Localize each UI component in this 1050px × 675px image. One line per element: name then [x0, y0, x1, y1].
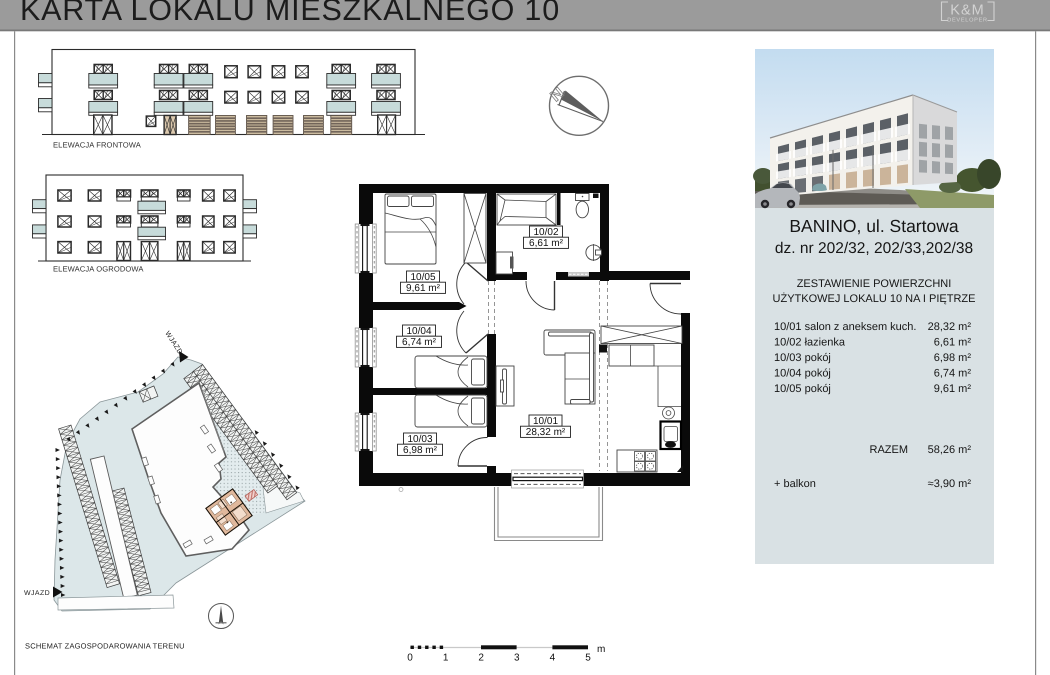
- svg-text:SCHEMAT ZAGOSPODAROWANIA TEREN: SCHEMAT ZAGOSPODAROWANIA TERENU: [25, 642, 185, 651]
- svg-text:4: 4: [550, 653, 556, 664]
- svg-text:≈3,90 m²: ≈3,90 m²: [928, 478, 972, 490]
- svg-text:6,98 m²: 6,98 m²: [403, 445, 438, 456]
- svg-text:RAZEM: RAZEM: [870, 444, 909, 456]
- svg-text:10/03: 10/03: [407, 434, 432, 445]
- svg-text:m: m: [597, 644, 605, 655]
- svg-text:6,61 m²: 6,61 m²: [529, 238, 564, 249]
- svg-text:ELEWACJA OGRODOWA: ELEWACJA OGRODOWA: [53, 265, 144, 274]
- svg-text:6,74 m²: 6,74 m²: [934, 368, 972, 380]
- svg-text:10/01: 10/01: [533, 416, 558, 427]
- svg-text:DEVELOPER: DEVELOPER: [947, 18, 988, 24]
- svg-text:10/02 łazienka: 10/02 łazienka: [774, 337, 846, 349]
- svg-text:1: 1: [443, 653, 449, 664]
- svg-text:dz. nr 202/32, 202/33,202/38: dz. nr 202/32, 202/33,202/38: [775, 240, 973, 257]
- svg-text:ZESTAWIENIE POWIERZCHNI: ZESTAWIENIE POWIERZCHNI: [797, 278, 952, 290]
- svg-text:6,98 m²: 6,98 m²: [934, 352, 972, 364]
- svg-text:KARTA LOKALU MIESZKALNEGO 10: KARTA LOKALU MIESZKALNEGO 10: [20, 0, 560, 27]
- svg-text:+ balkon: + balkon: [774, 478, 816, 490]
- svg-text:10/02: 10/02: [533, 227, 558, 238]
- svg-text:10/01 salon z aneksem kuch.: 10/01 salon z aneksem kuch.: [774, 321, 916, 333]
- svg-text:2: 2: [478, 653, 484, 664]
- svg-text:5: 5: [585, 653, 591, 664]
- svg-text:10/05 pokój: 10/05 pokój: [774, 383, 831, 395]
- svg-text:ELEWACJA FRONTOWA: ELEWACJA FRONTOWA: [53, 141, 142, 150]
- svg-text:0: 0: [407, 653, 413, 664]
- svg-text:28,32 m²: 28,32 m²: [928, 321, 972, 333]
- svg-text:BANINO, ul. Startowa: BANINO, ul. Startowa: [789, 216, 958, 236]
- svg-text:3: 3: [514, 653, 520, 664]
- svg-text:10/03 pokój: 10/03 pokój: [774, 352, 831, 364]
- svg-text:6,61 m²: 6,61 m²: [934, 337, 972, 349]
- svg-text:9,61 m²: 9,61 m²: [406, 283, 441, 294]
- svg-text:6,74 m²: 6,74 m²: [402, 337, 437, 348]
- svg-text:10/04 pokój: 10/04 pokój: [774, 368, 831, 380]
- svg-text:K&M: K&M: [950, 3, 984, 19]
- svg-text:28,32 m²: 28,32 m²: [526, 427, 566, 438]
- svg-text:UŻYTKOWEJ LOKALU 10 NA I PIĘTR: UŻYTKOWEJ LOKALU 10 NA I PIĘTRZE: [773, 292, 976, 305]
- svg-text:9,61 m²: 9,61 m²: [934, 383, 972, 395]
- svg-text:10/05: 10/05: [410, 272, 435, 283]
- svg-text:58,26 m²: 58,26 m²: [928, 444, 972, 456]
- svg-text:WJAZD: WJAZD: [24, 590, 50, 597]
- svg-text:10/04: 10/04: [406, 326, 431, 337]
